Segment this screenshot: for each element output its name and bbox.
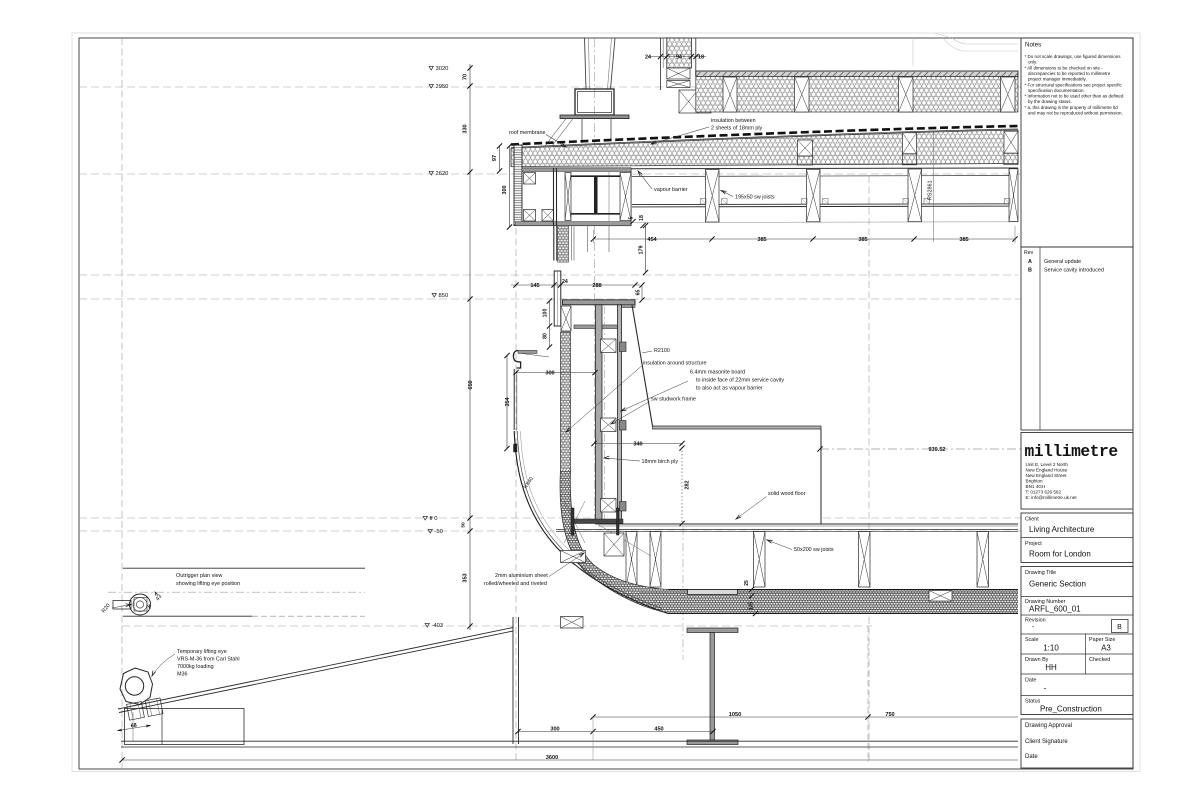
svg-text:Status: Status xyxy=(1025,699,1041,705)
svg-text:145: 145 xyxy=(530,283,539,289)
svg-text:* a, this drawing is the prope: * a, this drawing is the property of mil… xyxy=(1025,105,1119,110)
svg-text:B: B xyxy=(1028,268,1032,274)
svg-text:discrepancies to be reported t: discrepancies to be reported to millimet… xyxy=(1028,71,1111,76)
svg-text:939.52: 939.52 xyxy=(928,447,945,453)
svg-text:50x200 sw joists: 50x200 sw joists xyxy=(794,547,834,553)
svg-text:195x50 sw joists: 195x50 sw joists xyxy=(735,195,775,201)
svg-text:-403: -403 xyxy=(432,623,444,629)
svg-text:300: 300 xyxy=(545,371,554,377)
svg-text:roof membrane: roof membrane xyxy=(509,130,546,136)
svg-text:385: 385 xyxy=(757,237,766,243)
svg-text:millimetre: millimetre xyxy=(1025,443,1118,461)
svg-text:by the drawing status.: by the drawing status. xyxy=(1028,99,1072,104)
svg-text:94: 94 xyxy=(676,55,682,61)
svg-text:Unit E, Level 2 North: Unit E, Level 2 North xyxy=(1026,462,1069,467)
svg-text:New England Street: New England Street xyxy=(1026,473,1068,478)
svg-text:RS2861: RS2861 xyxy=(928,181,934,200)
svg-text:Notes: Notes xyxy=(1025,42,1041,49)
svg-text:T: 01273 626 562: T: 01273 626 562 xyxy=(1026,490,1062,495)
svg-text:ff 0: ff 0 xyxy=(430,516,438,522)
svg-text:25: 25 xyxy=(744,580,750,586)
svg-text:Project: Project xyxy=(1025,541,1042,547)
svg-text:rolled/wheeled and riveted: rolled/wheeled and riveted xyxy=(484,581,547,587)
svg-text:to inside face of 22mm service: to inside face of 22mm service cavity xyxy=(696,378,784,384)
svg-text:125: 125 xyxy=(749,602,755,611)
svg-text:3600: 3600 xyxy=(546,755,558,761)
svg-text:A3: A3 xyxy=(1101,644,1111,653)
svg-text:showing lifting eye position: showing lifting eye position xyxy=(176,581,240,587)
svg-text:300: 300 xyxy=(502,185,508,194)
svg-text:Drawing Approval: Drawing Approval xyxy=(1025,723,1072,729)
svg-text:179: 179 xyxy=(639,246,645,255)
svg-text:385: 385 xyxy=(959,237,968,243)
svg-text:68: 68 xyxy=(130,723,137,730)
svg-text:ARFL_600_01: ARFL_600_01 xyxy=(1029,605,1081,614)
svg-text:Generic Section: Generic Section xyxy=(1029,580,1086,589)
svg-text:-: - xyxy=(1044,684,1047,693)
svg-text:7000kg loading: 7000kg loading xyxy=(177,664,214,670)
svg-text:750: 750 xyxy=(885,712,894,718)
svg-text:E: info@millimetre.uk.net: E: info@millimetre.uk.net xyxy=(1026,495,1078,500)
svg-text:Date: Date xyxy=(1025,678,1036,684)
svg-text:insulation around structure: insulation around structure xyxy=(643,361,707,367)
svg-text:5: 5 xyxy=(629,216,635,219)
svg-text:R2100: R2100 xyxy=(654,348,670,354)
svg-text:Room for London: Room for London xyxy=(1029,550,1091,559)
svg-text:354: 354 xyxy=(505,398,511,407)
svg-text:Checked: Checked xyxy=(1089,657,1110,663)
svg-text:6.4mm masonite board: 6.4mm masonite board xyxy=(690,370,745,376)
svg-text:385: 385 xyxy=(858,237,867,243)
svg-text:* Information not to be used o: * Information not to be used other than … xyxy=(1025,94,1124,99)
svg-text:HH: HH xyxy=(1045,663,1057,672)
svg-text:BN1 4GH: BN1 4GH xyxy=(1026,484,1046,489)
svg-text:340: 340 xyxy=(633,442,642,448)
svg-text:2950: 2950 xyxy=(436,84,449,90)
svg-text:Revision: Revision xyxy=(1025,618,1046,624)
svg-text:and may not be reproduced with: and may not be reproduced without permis… xyxy=(1028,111,1123,116)
svg-text:18mm birch ply: 18mm birch ply xyxy=(642,459,679,465)
svg-text:18: 18 xyxy=(698,55,704,61)
svg-text:24: 24 xyxy=(645,55,651,61)
svg-text:sw studwork frame: sw studwork frame xyxy=(651,397,696,403)
svg-text:* All dimensions to be checked: * All dimensions to be checked on site - xyxy=(1025,65,1104,70)
svg-text:New England House: New England House xyxy=(1026,468,1068,473)
svg-text:Living Architecture: Living Architecture xyxy=(1029,525,1095,534)
svg-text:50: 50 xyxy=(461,522,467,528)
svg-text:Service cavity introduced: Service cavity introduced xyxy=(1044,268,1104,274)
svg-text:1:10: 1:10 xyxy=(1043,644,1059,653)
svg-text:A: A xyxy=(1028,259,1032,265)
svg-text:330: 330 xyxy=(463,124,469,133)
svg-text:to also act as vapour barrier: to also act as vapour barrier xyxy=(696,386,763,392)
svg-text:Brighton: Brighton xyxy=(1026,479,1044,484)
svg-text:100: 100 xyxy=(543,309,549,318)
svg-text:VRS-M-36 from Carl Stahl: VRS-M-36 from Carl Stahl xyxy=(177,657,240,663)
svg-text:B: B xyxy=(1117,624,1122,631)
svg-text:2mm aluminium sheet: 2mm aluminium sheet xyxy=(495,573,548,579)
svg-text:Client: Client xyxy=(1025,517,1039,523)
svg-text:solid wood floor: solid wood floor xyxy=(768,491,806,497)
svg-text:Date: Date xyxy=(1025,754,1038,760)
svg-text:General update: General update xyxy=(1044,259,1081,265)
svg-text:Scale: Scale xyxy=(1025,637,1039,643)
svg-text:project manager immediately.: project manager immediately. xyxy=(1028,77,1087,82)
svg-text:18: 18 xyxy=(639,215,645,221)
svg-text:* For structural specification: * For structural specifications see proj… xyxy=(1025,82,1123,87)
svg-text:Pre_Construction: Pre_Construction xyxy=(1040,705,1102,714)
svg-text:450: 450 xyxy=(654,727,663,733)
svg-text:Client Signature: Client Signature xyxy=(1025,739,1068,745)
svg-text:2620: 2620 xyxy=(436,171,449,177)
svg-text:M36: M36 xyxy=(177,672,188,678)
svg-text:specification documentation.: specification documentation. xyxy=(1028,88,1085,93)
svg-text:282: 282 xyxy=(685,481,691,490)
svg-text:300: 300 xyxy=(550,727,559,733)
svg-text:288: 288 xyxy=(592,283,601,289)
svg-text:650: 650 xyxy=(468,380,474,389)
svg-text:850: 850 xyxy=(439,293,449,299)
svg-text:Paper Size: Paper Size xyxy=(1089,637,1115,643)
svg-text:65: 65 xyxy=(636,290,642,296)
svg-text:only.: only. xyxy=(1028,60,1037,65)
svg-text:1050: 1050 xyxy=(729,712,741,718)
svg-text:2 sheets of 18mm ply: 2 sheets of 18mm ply xyxy=(711,126,763,132)
svg-text:454: 454 xyxy=(647,237,657,243)
svg-text:Drawing Title: Drawing Title xyxy=(1025,570,1056,576)
svg-text:97: 97 xyxy=(492,155,498,161)
svg-text:70: 70 xyxy=(463,74,469,80)
svg-text:* Do not scale drawings, use f: * Do not scale drawings, use figured dim… xyxy=(1025,54,1122,59)
svg-text:Rev: Rev xyxy=(1024,250,1034,256)
svg-text:-50: -50 xyxy=(435,529,443,535)
svg-text:24: 24 xyxy=(562,279,568,285)
svg-text:vapour barrier: vapour barrier xyxy=(654,187,688,193)
svg-text:Temporary lifting eye: Temporary lifting eye xyxy=(177,649,227,655)
svg-text:insulation between: insulation between xyxy=(711,118,756,124)
svg-text:353: 353 xyxy=(463,573,469,582)
svg-text:3020: 3020 xyxy=(436,66,449,72)
svg-text:80: 80 xyxy=(543,333,549,339)
svg-text:Outrigger plan view: Outrigger plan view xyxy=(176,573,223,579)
